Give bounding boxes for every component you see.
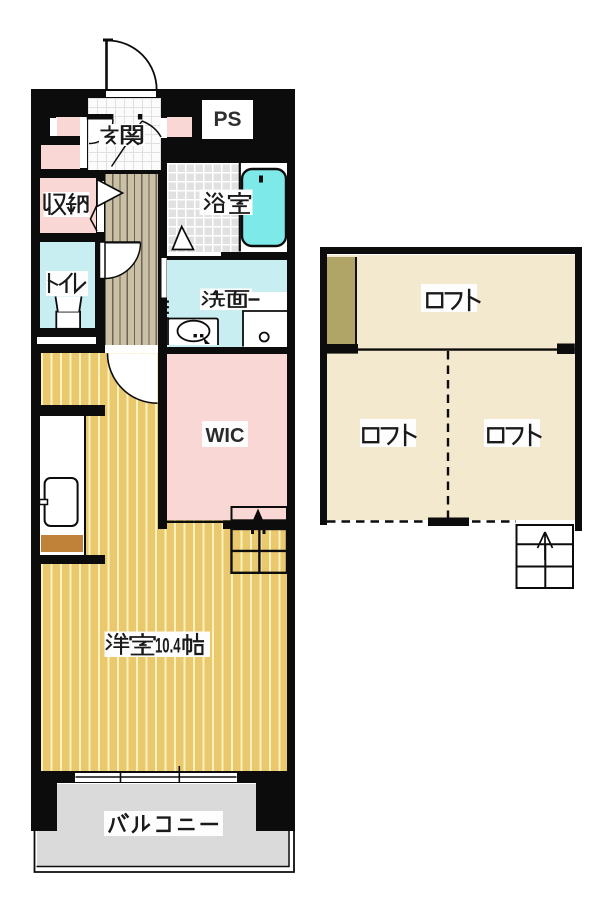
svg-text:WIC: WIC xyxy=(206,425,245,447)
svg-text:10.4: 10.4 xyxy=(155,635,181,658)
